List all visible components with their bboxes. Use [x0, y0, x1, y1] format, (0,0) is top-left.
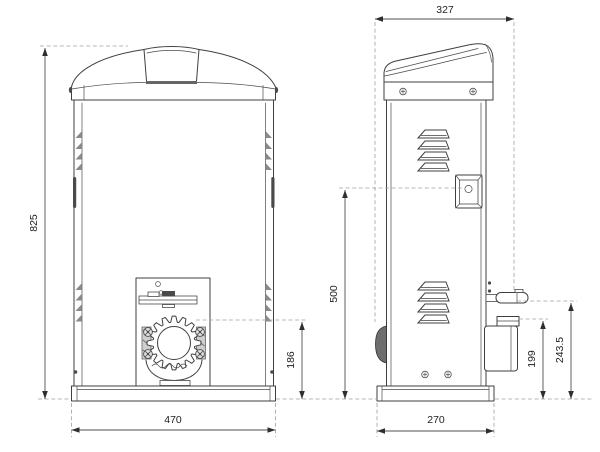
rear-motor-bump: [376, 326, 387, 363]
motor-plate: [136, 278, 210, 386]
dim-270-label: 270: [427, 414, 445, 426]
dim-825-label: 825: [28, 214, 40, 232]
side-body: [376, 100, 529, 386]
band-screw-icon: [470, 88, 477, 95]
body-screw-icon: [74, 370, 78, 374]
dim-243-5-label: 243.5: [554, 337, 566, 363]
dim-327-label: 327: [436, 4, 454, 16]
dim-side-pinion-top-height: 199: [519, 319, 548, 399]
body-screw-icon: [270, 370, 274, 374]
drawing-canvas: 825 186 470 327 500 199: [0, 0, 600, 452]
small-screw-icon: [488, 281, 491, 284]
ventilation-louvers: [418, 130, 449, 323]
front-top-cover: [69, 47, 278, 101]
pinion-bolt-icon: [196, 350, 205, 359]
side-view: [376, 44, 529, 401]
release-lock: [456, 175, 483, 208]
side-base-plate: [377, 386, 494, 401]
dim-500-label: 500: [328, 285, 340, 303]
front-view: [69, 47, 278, 402]
small-screw-icon: [488, 289, 491, 292]
side-screw-band: [384, 82, 493, 100]
pinion-bolt-icon: [144, 350, 153, 359]
cap-side-screw-icon: [275, 87, 278, 93]
lock-edge-profile: [271, 177, 274, 208]
pinion-housing: [485, 317, 520, 372]
front-base-plate: [72, 386, 276, 401]
lock-edge-profile: [73, 177, 76, 208]
pinion-bolt-icon: [144, 328, 153, 337]
dim-front-base-width: 470: [72, 403, 276, 437]
pinion-bolt-icon: [196, 328, 205, 337]
body-screw-icon: [422, 371, 429, 378]
pinion-bore: [158, 327, 191, 360]
technical-drawing: 825 186 470 327 500 199: [0, 0, 600, 452]
dim-470-label: 470: [164, 414, 182, 426]
dim-186-label: 186: [285, 351, 297, 369]
body-screw-icon: [445, 371, 452, 378]
dim-side-lever-height: 243.5: [517, 301, 577, 399]
dim-side-base-depth: 270: [377, 403, 494, 437]
band-screw-icon: [400, 88, 407, 95]
dim-front-overall-height: 825: [28, 46, 128, 399]
dim-199-label: 199: [526, 350, 538, 368]
side-top-cover: [384, 44, 493, 82]
release-lever: [486, 290, 528, 304]
cap-side-screw-icon: [69, 87, 72, 93]
handle-recess-back-edge: [144, 47, 199, 50]
handle-recess: [144, 50, 147, 82]
